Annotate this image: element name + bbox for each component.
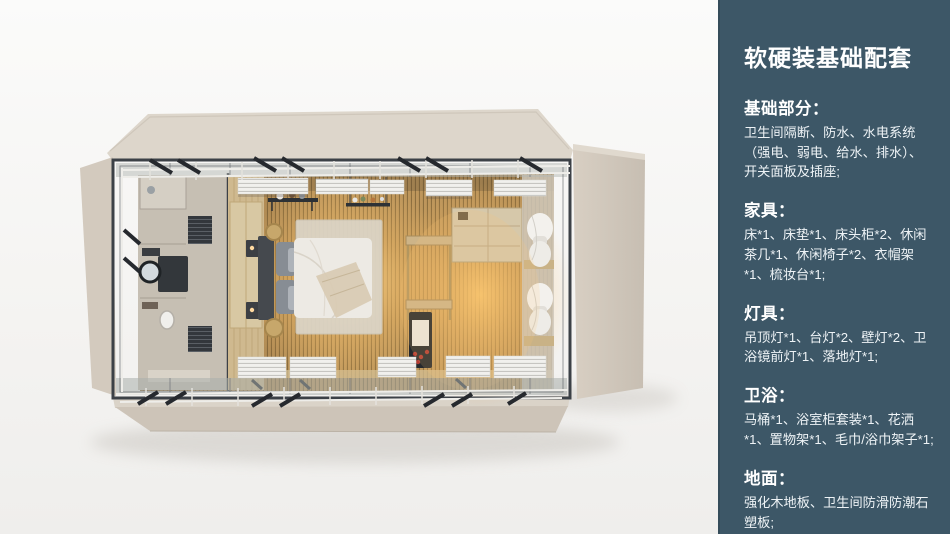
towel xyxy=(142,248,160,256)
hanging-shelf xyxy=(346,203,390,207)
vent-grille xyxy=(188,216,212,244)
section-body: 床*1、床垫*1、床头柜*2、休闲茶几*1、休闲椅子*2、衣帽架*1、梳妆台*1… xyxy=(744,225,934,284)
section-body: 卫生间隔断、防水、水电系统（强电、弱电、给水、排水）、开关面板及插座; xyxy=(744,123,934,182)
toilet xyxy=(160,311,174,329)
bathroom xyxy=(138,173,228,391)
panel-title: 软硬装基础配套 xyxy=(744,44,934,73)
basket xyxy=(266,224,282,240)
towel xyxy=(142,302,158,309)
section-heading: 灯具： xyxy=(744,300,934,324)
headboard xyxy=(258,236,274,320)
round-mirror xyxy=(140,262,160,282)
section-heading: 卫浴： xyxy=(744,382,934,406)
section-heading: 地面： xyxy=(744,465,934,489)
room-render xyxy=(0,0,718,534)
section-heading: 基础部分： xyxy=(744,95,934,119)
section-furniture: 家具： 床*1、床垫*1、床头柜*2、休闲茶几*1、休闲椅子*2、衣帽架*1、梳… xyxy=(744,197,934,284)
radiator xyxy=(188,326,212,352)
section-flooring: 地面： 强化木地板、卫生间防滑防潮石塑板; xyxy=(744,465,934,533)
spec-panel: 软硬装基础配套 基础部分： 卫生间隔断、防水、水电系统（强电、弱电、给水、排水）… xyxy=(718,0,950,534)
section-basics: 基础部分： 卫生间隔断、防水、水电系统（强电、弱电、给水、排水）、开关面板及插座… xyxy=(744,95,934,182)
table-lamp-icon xyxy=(250,308,254,312)
section-lighting: 灯具： 吊顶灯*1、台灯*2、壁灯*2、卫浴镜前灯*1、落地灯*1; xyxy=(744,300,934,368)
shower-head-icon xyxy=(147,186,155,194)
vanity-counter xyxy=(158,256,188,292)
table-lamp-icon xyxy=(250,246,254,250)
section-bathroom: 卫浴： 马桶*1、浴室柜套装*1、花洒*1、置物架*1、毛巾/浴巾架子*1; xyxy=(744,382,934,450)
section-body: 马桶*1、浴室柜套装*1、花洒*1、置物架*1、毛巾/浴巾架子*1; xyxy=(744,410,934,450)
basket xyxy=(265,319,283,337)
section-heading: 家具： xyxy=(744,197,934,221)
section-body: 强化木地板、卫生间防滑防潮石塑板; xyxy=(744,493,934,533)
coat-rack xyxy=(268,198,318,202)
slide: 软硬装基础配套 基础部分： 卫生间隔断、防水、水电系统（强电、弱电、给水、排水）… xyxy=(0,0,950,534)
section-body: 吊顶灯*1、台灯*2、壁灯*2、卫浴镜前灯*1、落地灯*1; xyxy=(744,328,934,368)
